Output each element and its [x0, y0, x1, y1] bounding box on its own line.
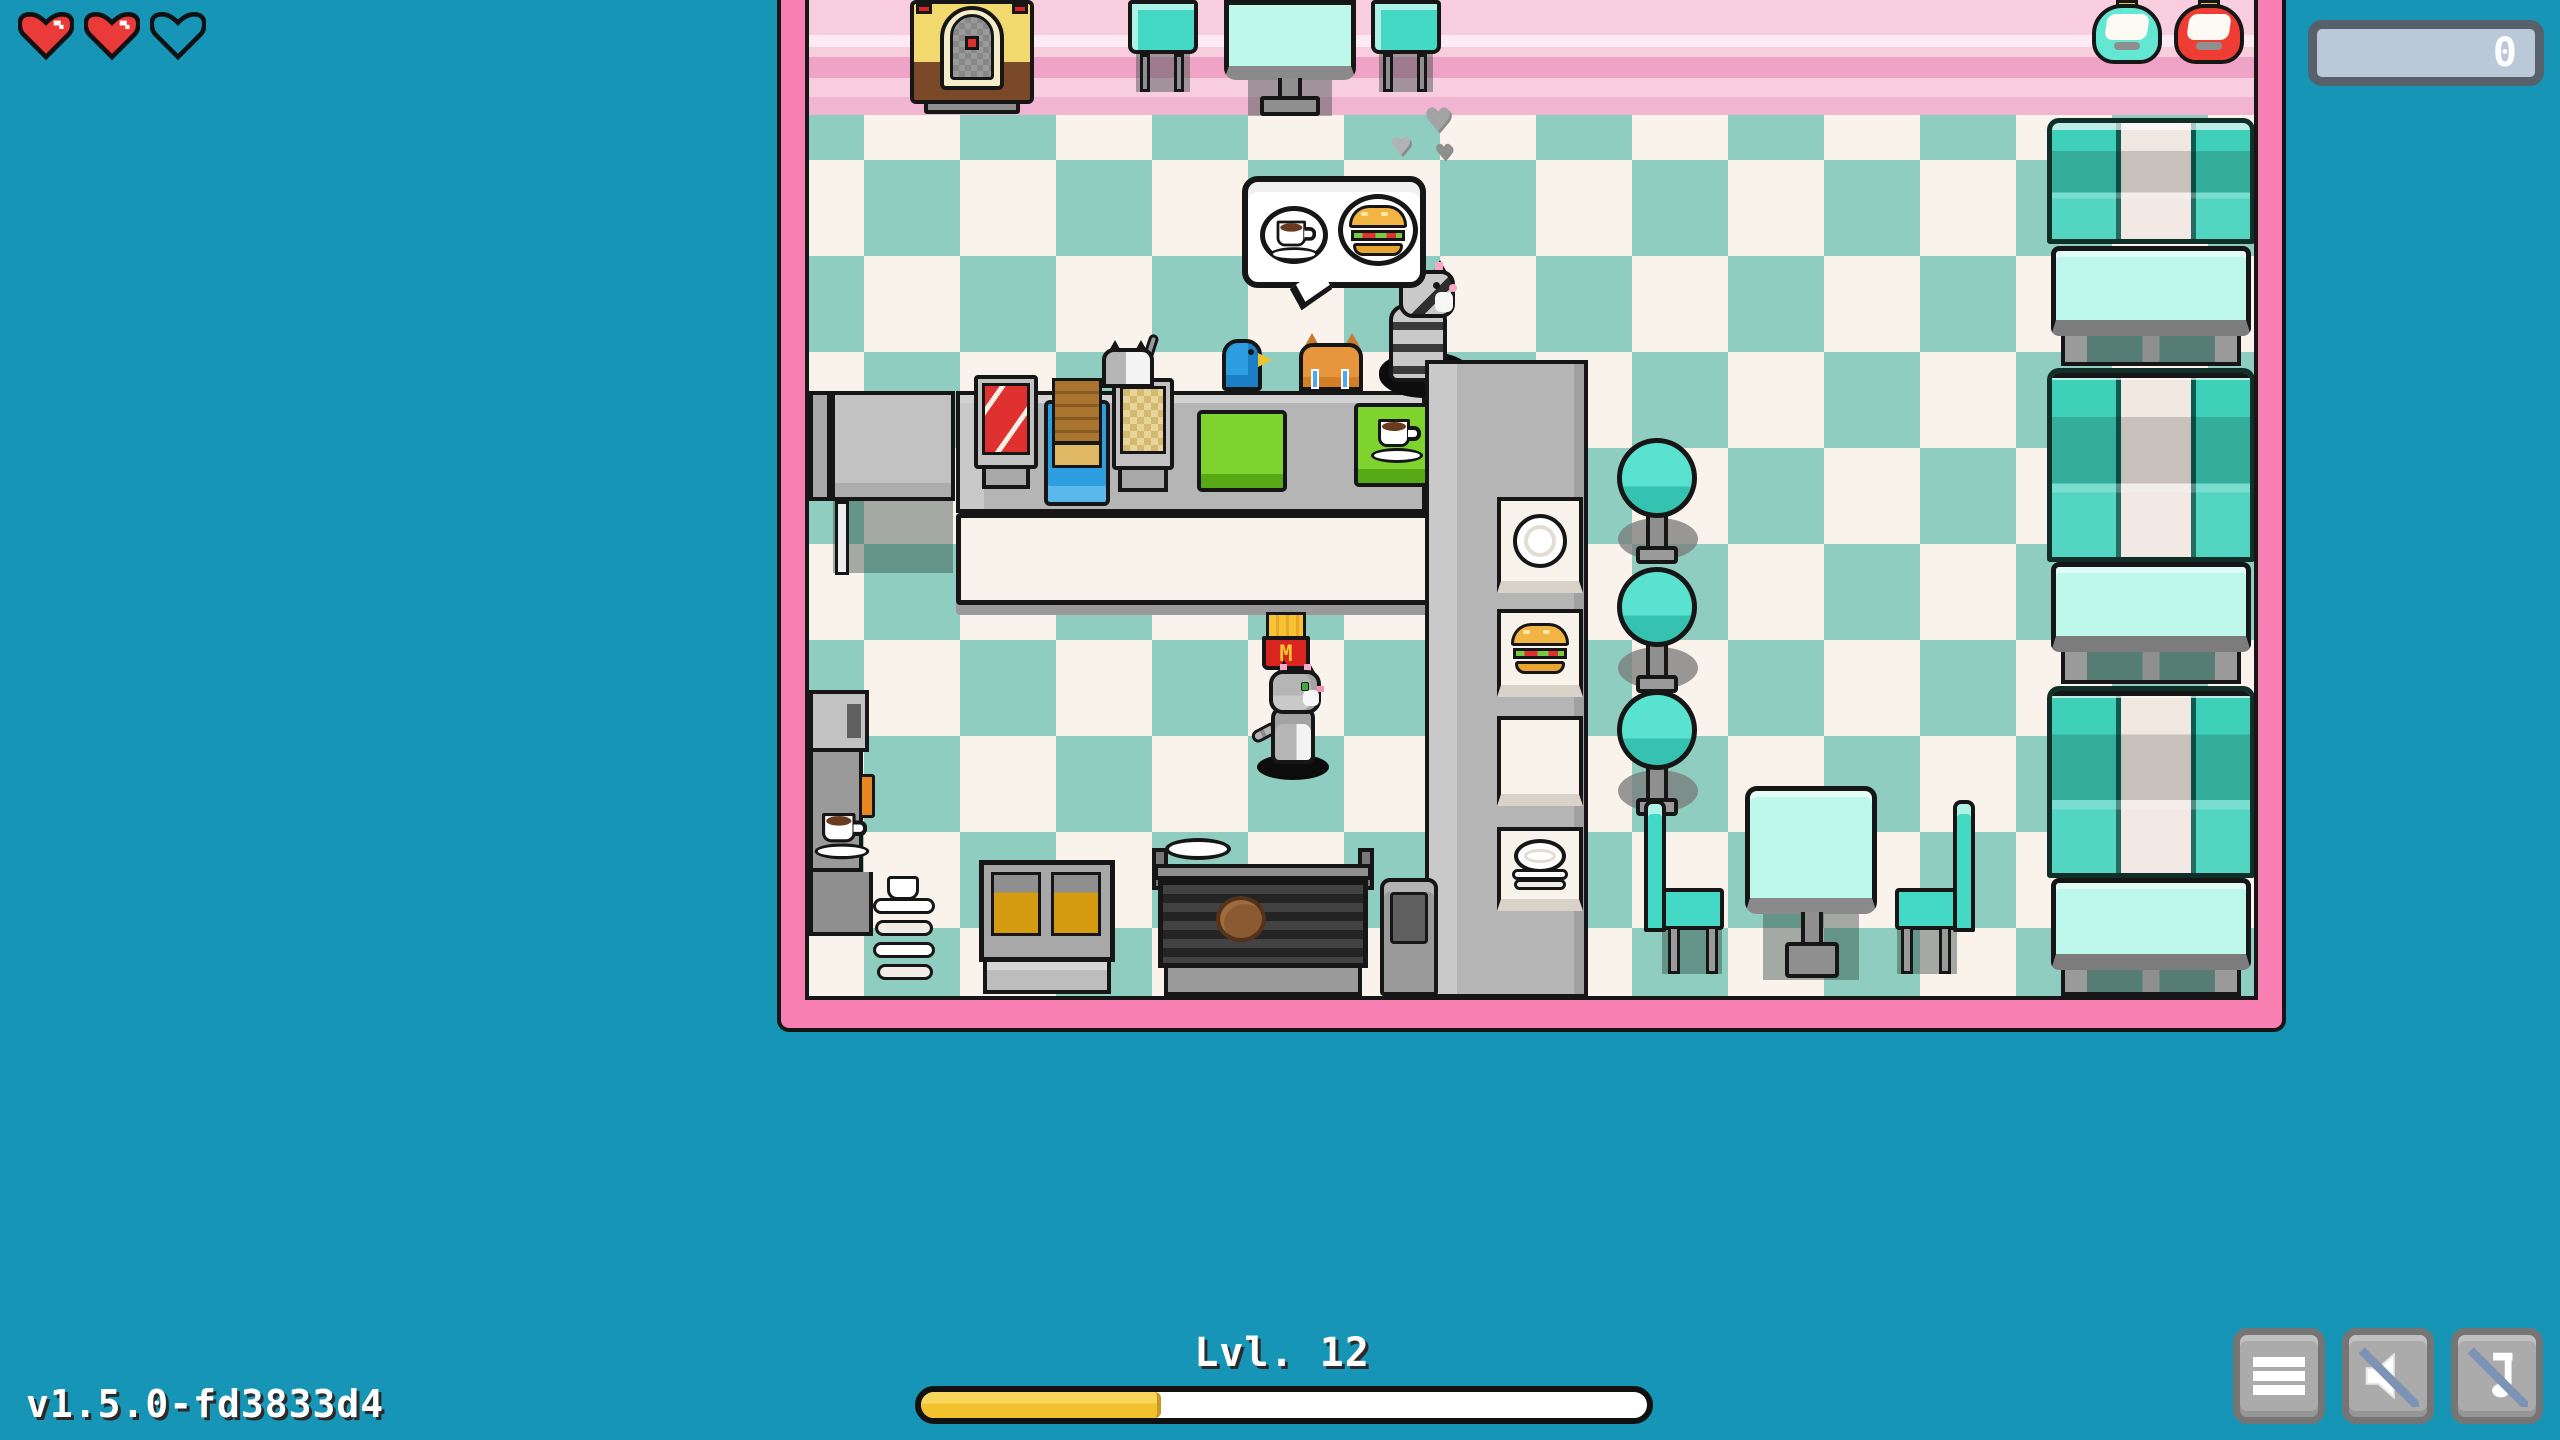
toast-stack — [1052, 378, 1102, 444]
booth-legs — [2061, 652, 2241, 684]
soda-dispenser-teal — [2092, 0, 2164, 66]
chair-leg — [1417, 54, 1427, 92]
left-prep-table — [809, 391, 955, 579]
deep-fryer — [979, 860, 1115, 998]
music-note-muted-icon — [2466, 1345, 2528, 1407]
xp-progress-fill — [921, 1392, 1161, 1418]
diner-booth-bench-double — [2047, 686, 2255, 878]
cat-nose-pink — [1317, 686, 1324, 692]
coin-counter: 0 — [2308, 20, 2544, 86]
tear-left — [1311, 369, 1319, 389]
cat-head — [1299, 343, 1363, 391]
diner-booth-bench — [2047, 118, 2255, 244]
prep-table-wing — [809, 391, 831, 501]
saucer — [875, 920, 933, 936]
dispenser-slot — [2196, 42, 2222, 50]
chair-leg — [1174, 54, 1184, 92]
booth-table — [2051, 246, 2251, 336]
table-base — [1260, 96, 1320, 116]
machine-top — [809, 690, 869, 752]
tear-right — [1341, 369, 1349, 389]
speaker-muted-icon — [2357, 1345, 2419, 1407]
booth-legs — [2061, 336, 2241, 366]
prep-table-shadow — [833, 501, 953, 573]
xp-progress-bar — [915, 1386, 1653, 1424]
music-muted-button[interactable] — [2451, 1328, 2543, 1424]
game-viewport[interactable]: ♥ ♥ ♥ — [777, 0, 2286, 1032]
table-base — [1785, 942, 1839, 978]
plate-icon — [1513, 514, 1567, 568]
customer-bird-blue[interactable] — [1222, 339, 1268, 393]
cat-muzzle — [1435, 292, 1453, 312]
booth-legs — [2061, 970, 2241, 996]
burger-patty — [1216, 896, 1266, 942]
booth-table — [2051, 562, 2251, 652]
fryer-base — [983, 962, 1111, 994]
speech-bubble[interactable] — [1242, 176, 1426, 288]
prep-table-leg — [835, 501, 849, 575]
chair-back — [1371, 0, 1441, 54]
speech-bubble-tail — [1290, 268, 1332, 310]
smoke-heart-icon: ♥ — [1392, 130, 1410, 165]
jukebox-base — [924, 100, 1020, 114]
customer-cat-white-gray[interactable] — [1102, 348, 1168, 392]
coffee-icon — [1269, 217, 1321, 261]
bird-eye — [1248, 349, 1254, 355]
coffee-cup — [814, 809, 873, 859]
player-cat-gray-tabby[interactable] — [1255, 670, 1331, 782]
bar-stool — [1612, 438, 1702, 574]
top-dining-table — [1224, 0, 1356, 118]
sound-muted-button[interactable] — [2342, 1328, 2434, 1424]
bacon — [982, 383, 1030, 455]
customer-cat-orange-crying[interactable] — [1299, 343, 1365, 393]
heart-empty-icon — [150, 10, 206, 62]
grill-rail — [1154, 864, 1372, 880]
hamburger-icon — [2253, 1353, 2305, 1399]
saucer-stack — [873, 884, 941, 988]
plate-stack-icon — [1512, 839, 1568, 891]
cat-body — [1271, 706, 1315, 764]
cat-eye — [1433, 282, 1440, 289]
hashbrown-stand — [1112, 378, 1174, 494]
jukebox — [910, 0, 1034, 118]
burger-icon — [1511, 623, 1569, 675]
level-label: Lvl. 12 — [1082, 1330, 1482, 1376]
service-window-burger — [1497, 609, 1583, 697]
table-top — [1745, 786, 1877, 914]
jukebox-red-dot — [965, 36, 979, 50]
top-chair-right — [1371, 0, 1441, 94]
saucer — [877, 964, 933, 980]
top-chair-left — [1128, 0, 1198, 94]
order-plate — [1338, 194, 1418, 266]
chair-leg — [1383, 54, 1393, 92]
coffee-icon — [1370, 415, 1426, 463]
toast-base — [1052, 442, 1102, 468]
saucer — [873, 898, 935, 914]
trash-can — [1380, 878, 1438, 996]
saucer — [873, 942, 935, 958]
bar-stool — [1612, 567, 1702, 703]
grill — [1152, 848, 1374, 998]
cafe-table — [1745, 786, 1877, 986]
order-plate — [1260, 206, 1328, 264]
hud-buttons — [2233, 1328, 2543, 1424]
bird-body — [1222, 339, 1262, 391]
fryer-basket-right — [1051, 872, 1101, 936]
soda-dispenser-red — [2174, 0, 2246, 66]
chair-back — [1128, 0, 1198, 54]
coin-value: 0 — [2493, 30, 2517, 76]
cafe-chair-left — [1644, 800, 1730, 978]
menu-button[interactable] — [2233, 1328, 2325, 1424]
jukebox-light-right — [1012, 4, 1028, 14]
bird-beak — [1258, 353, 1272, 367]
jukebox-light-left — [916, 4, 932, 14]
machine-base — [809, 872, 873, 936]
dispenser-label — [2104, 14, 2150, 40]
heart-filled-icon — [18, 10, 74, 62]
burger-icon — [1349, 205, 1407, 257]
smoke-heart-icon: ♥ — [1436, 138, 1452, 168]
cat-eye-green — [1301, 682, 1309, 691]
green-placemat — [1197, 410, 1287, 492]
service-window-plate — [1497, 497, 1583, 593]
service-window-plate-stack — [1497, 827, 1583, 911]
diner-booth-bench-double — [2047, 368, 2255, 562]
cat-cheek — [1449, 284, 1457, 292]
service-counter-front — [956, 513, 1493, 605]
heart-filled-icon — [84, 10, 140, 62]
cup — [887, 876, 919, 900]
service-window-empty — [1497, 716, 1583, 806]
machine-slot — [847, 704, 861, 738]
grill-base — [1164, 968, 1362, 996]
table-top — [1224, 0, 1356, 80]
cat-ear-pink — [1435, 262, 1443, 270]
fryer-basket-left — [991, 872, 1041, 936]
toast-stack-tray — [1044, 378, 1110, 506]
trash-opening — [1390, 892, 1428, 944]
diner-interior: ♥ ♥ ♥ — [805, 0, 2258, 1000]
prep-table-top — [831, 391, 955, 501]
cafe-chair-right — [1889, 800, 1975, 978]
dispenser-label — [2186, 14, 2232, 40]
booth-table — [2051, 878, 2251, 970]
chair-leg — [1140, 54, 1150, 92]
game-screen: 0 Lvl. 12 v1.5.0-fd3833d4 — [0, 0, 2560, 1440]
cat-muzzle — [1303, 690, 1319, 706]
health-hearts — [18, 10, 206, 62]
service-counter-vertical — [1425, 360, 1588, 998]
version-text: v1.5.0-fd3833d4 — [26, 1382, 384, 1426]
bacon-box — [974, 375, 1038, 493]
hashbrown — [1120, 386, 1166, 454]
dispenser-slot — [2114, 42, 2140, 50]
cat-head — [1102, 348, 1154, 388]
floor-plate[interactable] — [1165, 838, 1231, 860]
